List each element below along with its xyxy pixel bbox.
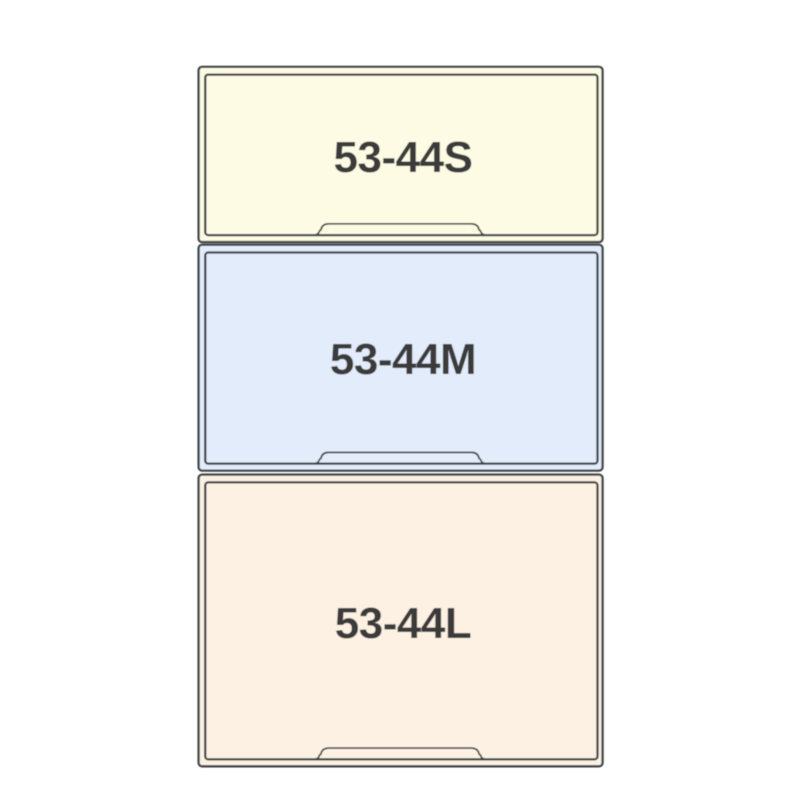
svg-text:53-44S: 53-44S	[334, 133, 473, 182]
svg-text:53-44L: 53-44L	[335, 599, 471, 648]
svg-text:53-44M: 53-44M	[330, 335, 476, 384]
